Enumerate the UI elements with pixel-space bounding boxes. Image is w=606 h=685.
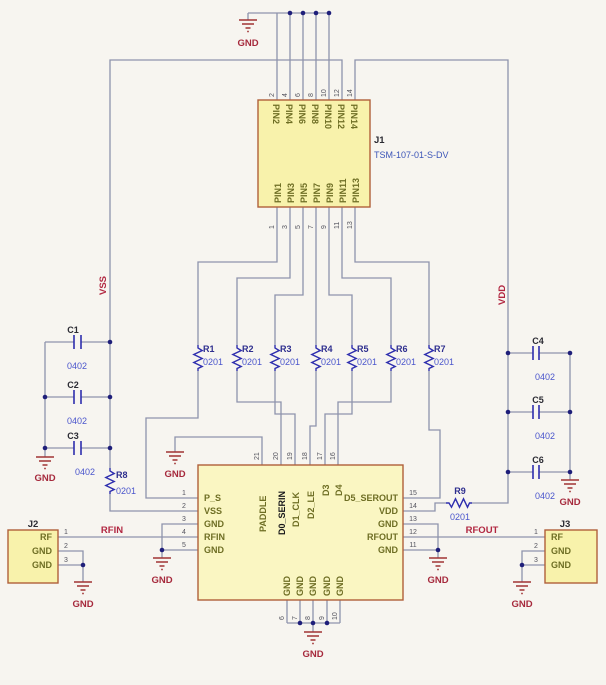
j1-pin-number: 13 <box>347 221 354 229</box>
j3-pin-number: 2 <box>534 543 538 550</box>
capacitor-value: 0402 <box>535 372 555 382</box>
resistor-value: 0201 <box>357 357 377 367</box>
ic-pin-name: PADDLE <box>258 496 268 532</box>
wire-paddle-gnd <box>175 437 262 465</box>
j1-pin-number: 11 <box>334 222 341 229</box>
ic-pin-number: 7 <box>292 616 299 620</box>
j1-pin-name: PIN1 <box>273 183 283 203</box>
j1-pin-name: PIN8 <box>310 104 320 124</box>
wire-j2-gnd <box>58 551 83 582</box>
capacitor-value: 0402 <box>75 467 95 477</box>
ic-pin-name: GND <box>322 576 332 597</box>
ground-icon <box>304 632 322 644</box>
ground-icon <box>74 582 92 594</box>
gnd-ic-right: GND <box>427 558 448 586</box>
resistor-ref: R4 <box>321 344 333 354</box>
resistor-value: 0201 <box>434 357 454 367</box>
ic-pin-number: 11 <box>409 542 416 549</box>
resistor-ref: R2 <box>242 344 254 354</box>
capacitor-ref: C4 <box>532 336 544 346</box>
ic-pin-number: 3 <box>182 516 186 523</box>
j3-pin-name: GND <box>551 546 572 556</box>
connector-j1: J1 TSM-107-01-S-DV 2 4 6 8 10 12 14 PIN2… <box>258 89 449 229</box>
ic-pin-number: 16 <box>330 452 337 460</box>
gnd-top: GND <box>237 20 258 49</box>
ic-pin-number: 19 <box>287 452 294 460</box>
j2-pin-number: 2 <box>64 543 68 550</box>
resistor-symbol <box>387 345 395 371</box>
j1-pin-name: PIN12 <box>336 104 346 129</box>
main-ic: 21 20 19 18 17 16 PADDLE D0_SERIN D1_CLK… <box>182 452 417 620</box>
ic-pin-name: P_S <box>204 493 221 503</box>
j1-pin-name: PIN10 <box>323 104 333 129</box>
wire-ic-left-gnd <box>162 524 198 558</box>
resistor-symbol <box>271 345 279 371</box>
ic-pin-number: 9 <box>319 616 326 620</box>
j1-pin-name: PIN14 <box>349 104 359 129</box>
j2-pin-name: GND <box>32 546 53 556</box>
resistor-value: 0201 <box>396 357 416 367</box>
ground-icon <box>561 480 579 492</box>
resistor-symbol <box>106 468 114 494</box>
ic-pin-name: D1_CLK <box>291 491 301 527</box>
ic-pin-name: GND <box>378 519 399 529</box>
j1-pin-number: 9 <box>321 225 328 229</box>
ic-pin-name: GND <box>378 545 399 555</box>
ic-pin-number: 10 <box>332 612 339 620</box>
ic-pin-name: VDD <box>379 506 399 516</box>
j3-pin-number: 1 <box>534 529 538 536</box>
ground-icon <box>429 558 447 570</box>
schematic-canvas: J1 TSM-107-01-S-DV 2 4 6 8 10 12 14 PIN2… <box>0 0 606 680</box>
resistor-r2: R2 0201 <box>233 344 262 371</box>
j2-pin-name: RF <box>40 532 52 542</box>
ic-pin-name: VSS <box>204 506 222 516</box>
ground-icon <box>513 582 531 594</box>
resistor-symbol <box>425 345 433 371</box>
resistor-r8: R8 0201 <box>106 468 136 496</box>
j3-pin-name: RF <box>551 532 563 542</box>
resistor-symbol <box>194 345 202 371</box>
wire-vdd-net <box>355 60 570 511</box>
ic-pin-number: 2 <box>182 503 186 510</box>
gnd-label: GND <box>34 473 55 484</box>
j1-ref: J1 <box>374 135 385 146</box>
resistor-r6: R6 0201 <box>387 344 416 371</box>
capacitor-ref: C2 <box>67 380 79 390</box>
ic-pin-number: 1 <box>182 490 186 497</box>
gnd-paddle: GND <box>164 452 185 480</box>
resistor-r3: R3 0201 <box>271 344 300 371</box>
capacitor-value: 0402 <box>67 361 87 371</box>
resistor-value: 0201 <box>321 357 341 367</box>
net-label-rfout: RFOUT <box>466 525 499 536</box>
gnd-label: GND <box>164 469 185 480</box>
ic-pin-number: 13 <box>409 516 417 523</box>
j1-part-number: TSM-107-01-S-DV <box>374 150 449 160</box>
gnd-label: GND <box>302 649 323 660</box>
capacitor-ref: C1 <box>67 325 79 335</box>
j1-pin-name: PIN5 <box>299 183 309 203</box>
ic-pin-name: D0_SERIN <box>277 491 287 535</box>
net-label-vss: VSS <box>98 276 109 295</box>
resistor-value: 0201 <box>203 357 223 367</box>
ic-pin-name: D4 <box>334 484 344 496</box>
gnd-label: GND <box>559 497 580 508</box>
schematic-page: J1 TSM-107-01-S-DV 2 4 6 8 10 12 14 PIN2… <box>0 0 606 680</box>
ground-icon <box>166 452 184 464</box>
j1-pin-number: 12 <box>334 89 341 97</box>
net-label-rfin: RFIN <box>101 525 123 536</box>
gnd-ic-bottom: GND <box>302 632 323 660</box>
j2-ref: J2 <box>28 519 39 530</box>
net-label-vdd: VDD <box>497 285 508 305</box>
capacitor-value: 0402 <box>535 431 555 441</box>
ic-pin-number: 18 <box>302 452 309 460</box>
resistor-value: 0201 <box>280 357 300 367</box>
ic-pin-number: 15 <box>409 490 417 497</box>
ic-pin-number: 12 <box>409 529 417 536</box>
j1-pin-number: 14 <box>347 89 354 97</box>
gnd-j3: GND <box>511 582 532 610</box>
j3-ref: J3 <box>560 519 571 530</box>
resistor-ref: R7 <box>434 344 446 354</box>
gnd-label: GND <box>237 38 258 49</box>
resistor-r1: R1 0201 <box>194 344 223 371</box>
j1-pin-number: 6 <box>295 93 302 97</box>
resistor-ref: R5 <box>357 344 369 354</box>
ic-pin-name: GND <box>335 576 345 597</box>
ic-pin-name: GND <box>295 576 305 597</box>
wire-j3-gnd <box>522 551 545 582</box>
gnd-right-caps: GND <box>559 480 580 508</box>
gnd-label: GND <box>151 575 172 586</box>
ic-pin-name: GND <box>204 519 225 529</box>
resistor-ref: R3 <box>280 344 292 354</box>
j1-pin-name: PIN2 <box>271 104 281 124</box>
j1-pin-name: PIN4 <box>284 104 294 124</box>
resistor-r7: R7 0201 <box>425 344 454 371</box>
resistor-r5: R5 0201 <box>348 344 377 371</box>
resistor-r9: R9 0201 <box>446 486 472 522</box>
j3-pin-number: 3 <box>534 557 538 564</box>
resistor-value: 0201 <box>116 486 136 496</box>
ic-pin-name: D5_SEROUT <box>344 493 399 503</box>
ic-pin-number: 6 <box>279 616 286 620</box>
j1-pin-name: PIN9 <box>325 183 335 203</box>
capacitor-ref: C6 <box>532 455 544 465</box>
ic-pin-number: 20 <box>273 452 280 460</box>
j1-pin-number: 1 <box>269 225 276 229</box>
capacitor-value: 0402 <box>67 416 87 426</box>
j1-pin-name: PIN13 <box>351 178 361 203</box>
j2-pin-number: 3 <box>64 557 68 564</box>
gnd-label: GND <box>72 599 93 610</box>
resistor-value: 0201 <box>450 512 470 522</box>
gnd-label: GND <box>427 575 448 586</box>
ic-pin-name: RFIN <box>204 532 225 542</box>
gnd-left-caps: GND <box>34 457 55 484</box>
resistor-ref: R1 <box>203 344 215 354</box>
gnd-j2: GND <box>72 582 93 610</box>
j1-pin-name: PIN7 <box>312 183 322 203</box>
ic-pin-name: GND <box>282 576 292 597</box>
capacitor-ref: C5 <box>532 395 544 405</box>
resistor-symbol <box>446 499 472 507</box>
j1-pin-name: PIN3 <box>286 183 296 203</box>
j1-pin-number: 5 <box>295 225 302 229</box>
ic-pin-number: 14 <box>409 503 417 510</box>
j1-pin-number: 10 <box>321 89 328 97</box>
ic-pin-number: 17 <box>317 452 324 460</box>
ic-pin-number: 8 <box>305 616 312 620</box>
resistor-r4: R4 0201 <box>312 344 341 371</box>
ic-pin-number: 5 <box>182 542 186 549</box>
resistor-ref: R9 <box>454 486 466 496</box>
resistor-value: 0201 <box>242 357 262 367</box>
j1-pin-name: PIN11 <box>338 178 348 203</box>
gnd-label: GND <box>511 599 532 610</box>
capacitor-ref: C3 <box>67 431 79 441</box>
ic-pin-number: 4 <box>182 529 186 536</box>
gnd-ic-left: GND <box>151 558 172 586</box>
resistor-symbol <box>348 345 356 371</box>
j1-pin-number: 2 <box>269 93 276 97</box>
j1-pin-number: 7 <box>308 225 315 229</box>
j1-pin-name: PIN6 <box>297 104 307 124</box>
resistor-symbol <box>312 345 320 371</box>
ground-icon <box>153 558 171 570</box>
j1-pin-number: 4 <box>282 93 289 97</box>
resistor-symbol <box>233 345 241 371</box>
j1-pin-number: 8 <box>308 93 315 97</box>
ic-pin-name: GND <box>204 545 225 555</box>
j3-pin-name: GND <box>551 560 572 570</box>
ic-pin-name: D3 <box>321 484 331 496</box>
ic-pin-number: 21 <box>254 452 261 460</box>
j1-pin-number: 3 <box>282 225 289 229</box>
ic-pin-name: D2_LE <box>306 491 316 519</box>
ground-icon <box>36 457 54 469</box>
j2-pin-name: GND <box>32 560 53 570</box>
ic-pin-name: RFOUT <box>367 532 398 542</box>
resistor-ref: R6 <box>396 344 408 354</box>
capacitor-value: 0402 <box>535 491 555 501</box>
j2-pin-number: 1 <box>64 529 68 536</box>
wire-top-gnd-bus <box>248 13 329 100</box>
resistor-ref: R8 <box>116 470 128 480</box>
ground-icon <box>239 20 257 32</box>
ic-pin-name: GND <box>308 576 318 597</box>
